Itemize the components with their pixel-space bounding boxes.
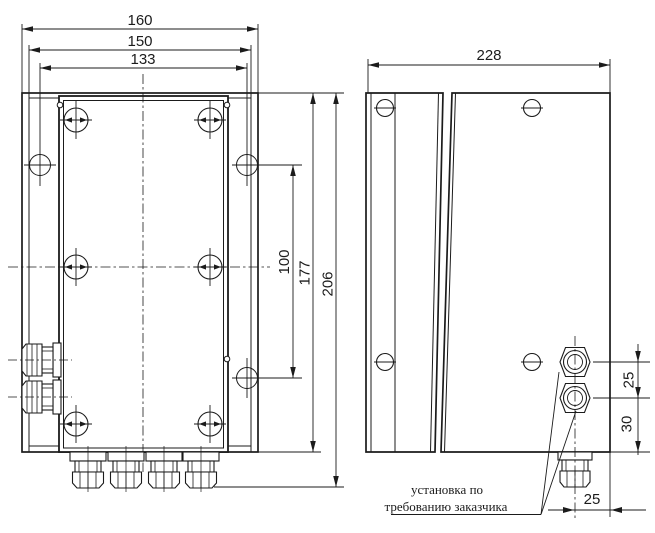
dim-label-206: 206 xyxy=(320,271,337,296)
side-view xyxy=(366,93,610,518)
side-screws xyxy=(374,100,543,371)
dim-label-160: 160 xyxy=(127,12,152,29)
slotted-screw-icon xyxy=(374,100,396,117)
slotted-screw-icon xyxy=(521,100,543,117)
bottom-cable-glands xyxy=(70,446,219,492)
dim-150: 150 xyxy=(29,33,251,53)
note-callout: установка по требованию заказчика xyxy=(385,372,576,515)
side-dimensions: 228 25 30 25 xyxy=(368,47,650,517)
dim-label-25-edge: 25 xyxy=(584,491,601,508)
cable-gland-bottom xyxy=(108,446,144,492)
cable-gland-bottom xyxy=(146,446,182,492)
side-back-plate xyxy=(366,93,443,452)
dimension-drawing: 160 150 133 100 xyxy=(0,0,655,533)
dim-label-228: 228 xyxy=(476,47,501,64)
cable-gland-bottom xyxy=(70,446,106,492)
drawing-canvas: 160 150 133 100 xyxy=(0,0,655,533)
dim-177: 177 xyxy=(297,93,316,452)
dim-133: 133 xyxy=(40,51,247,71)
dim-100: 100 xyxy=(276,165,296,378)
front-view xyxy=(8,63,344,492)
note-line2: требованию заказчика xyxy=(385,499,508,514)
dim-160: 160 xyxy=(22,12,258,32)
slotted-screw-icon xyxy=(374,354,396,371)
front-cover-box xyxy=(59,96,228,452)
slotted-screw-icon xyxy=(521,354,543,371)
dim-label-25-gap: 25 xyxy=(621,372,638,389)
dim-228: 228 xyxy=(368,47,610,93)
note-line1: установка по xyxy=(411,482,483,497)
leader-line xyxy=(541,372,559,515)
dim-label-133: 133 xyxy=(130,51,155,68)
dim-25-30-chain: 25 30 xyxy=(593,344,650,455)
dim-label-30: 30 xyxy=(619,416,636,433)
dim-206: 206 xyxy=(320,93,339,487)
dim-label-177: 177 xyxy=(297,260,314,285)
dim-label-150: 150 xyxy=(127,33,152,50)
dim-label-100: 100 xyxy=(276,249,293,274)
cable-gland-bottom xyxy=(183,446,219,492)
